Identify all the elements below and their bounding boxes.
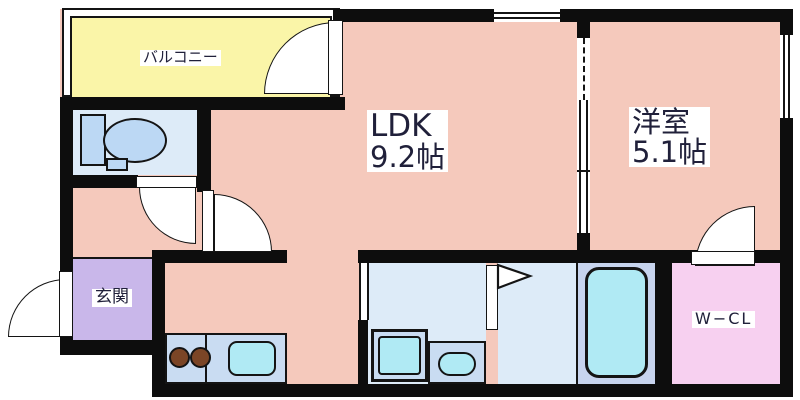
bathtub-icon — [585, 267, 648, 378]
opening-kitchen-washroom — [359, 263, 369, 320]
window-top-icon — [494, 9, 560, 22]
kitchen-sink-icon — [228, 341, 276, 376]
washing-machine-pan-icon — [371, 329, 428, 382]
western-room-name: 洋室 — [632, 107, 707, 137]
floor-plan: バルコニー LDK 9.2帖 洋室 5.1帖 玄関 W−CL — [0, 0, 800, 400]
ldk-door-leaf-icon — [202, 190, 214, 252]
wall-bath-wcl — [655, 250, 672, 384]
wall-top — [333, 9, 793, 22]
entrance-door-leaf-icon — [59, 271, 73, 337]
wall-entrance-right — [152, 255, 165, 397]
sliding-door-ldk-western-icon — [577, 38, 590, 233]
wall-kitchen-washroom — [358, 320, 368, 384]
stove-burner-left-icon — [169, 347, 190, 368]
wall-divider-bottom — [577, 233, 590, 263]
western-room-label: 洋室 5.1帖 — [629, 107, 710, 167]
entrance-door-arc-icon — [8, 279, 66, 337]
wall-toilet-right — [197, 97, 211, 192]
wall-bottom — [152, 384, 793, 397]
ldk-name: LDK — [370, 110, 445, 142]
ldk-size: 9.2帖 — [370, 142, 445, 172]
ldk-label: LDK 9.2帖 — [367, 110, 448, 172]
entrance-label: 玄関 — [92, 289, 132, 307]
balcony-label: バルコニー — [140, 50, 221, 66]
toilet-door-leaf-icon — [136, 176, 197, 188]
stove-burner-right-icon — [190, 347, 211, 368]
tub-platform-line — [576, 263, 578, 384]
balcony-door-leaf-icon — [328, 20, 343, 95]
washbasin-icon — [438, 352, 476, 376]
toilet-bowl-icon — [103, 118, 167, 163]
toilet-seat-icon — [106, 158, 128, 171]
wall-divider-top — [577, 9, 590, 38]
wcl-door-leaf-icon — [691, 251, 755, 265]
wall-toilet-bottom — [60, 175, 138, 188]
folding-door-flag-icon — [496, 262, 534, 292]
western-room-size: 5.1帖 — [632, 137, 707, 167]
window-right-icon — [780, 35, 793, 118]
wcl-label: W−CL — [692, 311, 755, 328]
wall-entrance-bottom — [60, 340, 165, 355]
outside-area — [0, 355, 152, 400]
washbasin-unit — [428, 341, 486, 384]
